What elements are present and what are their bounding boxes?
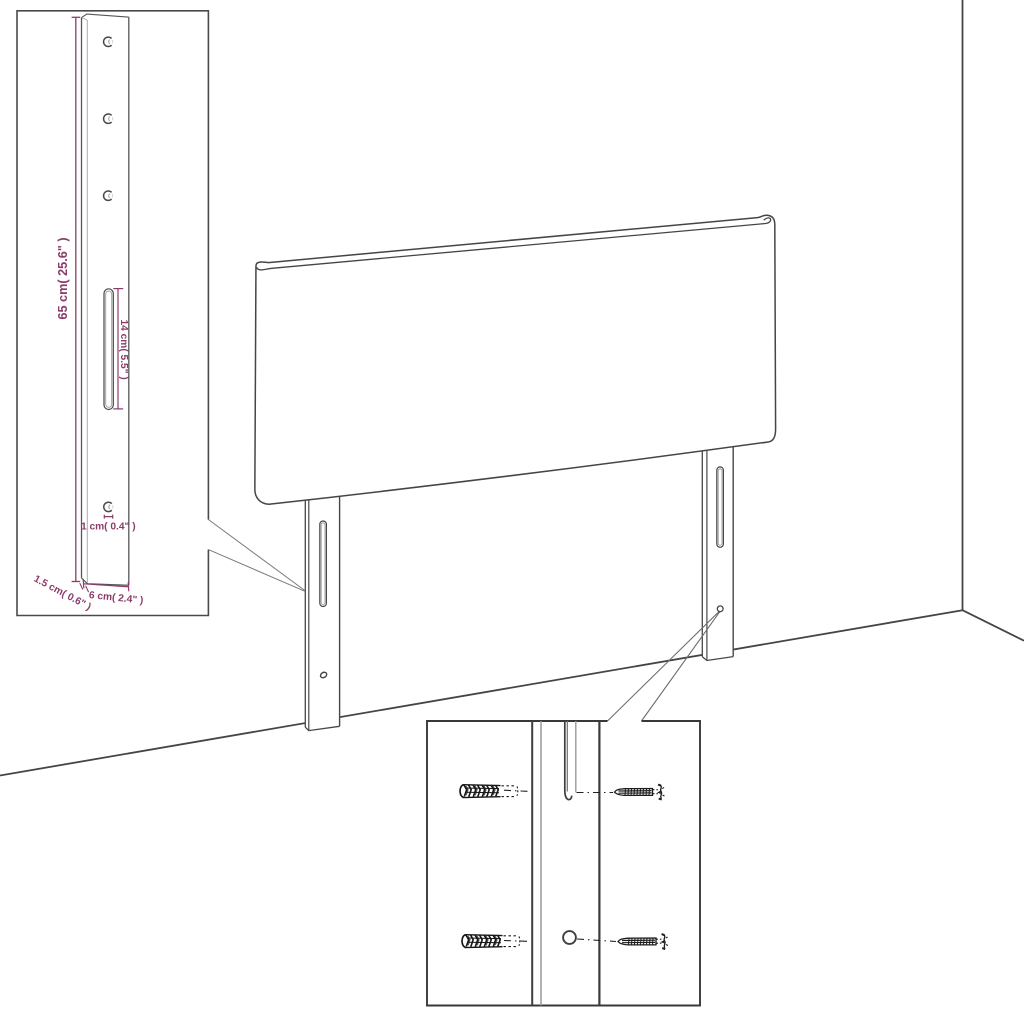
svg-text:1 cm( 0.4" ): 1 cm( 0.4" ) [81, 522, 136, 533]
svg-text:14 cm( 5.5" ): 14 cm( 5.5" ) [118, 319, 129, 379]
svg-text:6 cm( 2.4" ): 6 cm( 2.4" ) [88, 590, 144, 607]
svg-text:65 cm( 25.6" ): 65 cm( 25.6" ) [56, 237, 70, 319]
